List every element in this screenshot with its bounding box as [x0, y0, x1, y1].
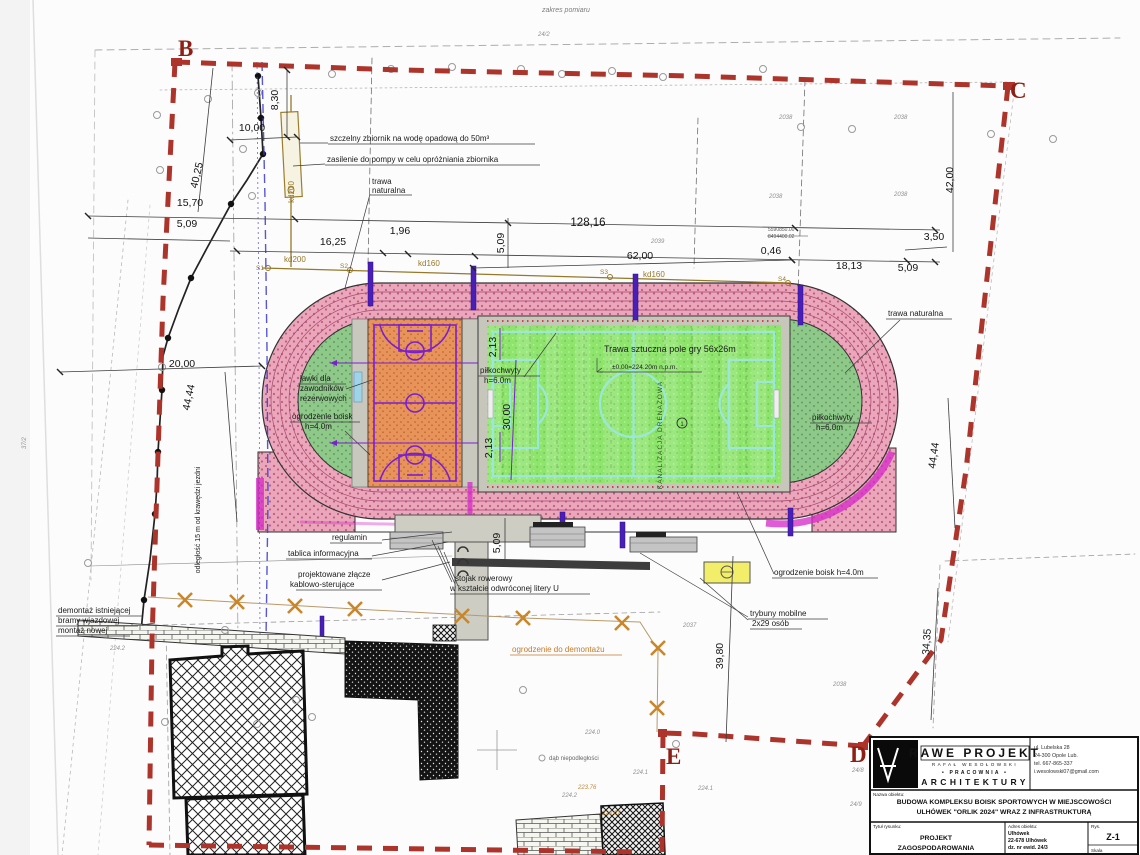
dim-196: 1,96 — [390, 225, 411, 237]
manhole-s1: S1 — [256, 265, 264, 272]
dim-2000: 20,00 — [169, 358, 195, 370]
parcel-n: 24/8 — [851, 768, 864, 774]
parcel-f: 2037 — [682, 623, 697, 629]
callout-tablica: tablica informacyjna — [288, 549, 359, 558]
field-title: Trawa sztuczna pole gry 56x26m — [604, 344, 736, 354]
tb-adres-2: 22-678 Ulhówek — [1008, 838, 1047, 844]
tb-adres-3: dz. nr ewid. 24/3 — [1008, 845, 1048, 851]
callout-ogrodzenie-right: ogrodzenie boisk h=4.0m — [774, 568, 864, 577]
callout-lawki-3: rezerwowych — [300, 394, 347, 403]
callout-trybuny-2: 2x29 osób — [752, 619, 789, 628]
tb-rys-label: Rys. — [1091, 824, 1100, 829]
callout-pilkochwyty-left-2: h=6.0m — [484, 376, 511, 385]
dim-213b: 2,13 — [483, 438, 495, 459]
pipe-kd200-horizontal: kd200 — [284, 255, 306, 264]
dim-1625: 16,25 — [320, 236, 346, 248]
coord-north: 5590850.00 — [768, 227, 795, 233]
callout-demontaz-2: bramy wjazdowej — [58, 616, 120, 625]
tb-tytul-line2: ZAGOSPODAROWANIA — [898, 845, 975, 852]
players-bench — [354, 372, 362, 402]
site-plan-drawing: zakres pomiaru 24/2 B C D E szczelny zbi… — [0, 0, 1140, 855]
callout-odleglosc: odległość 15 m od krawędzi jezdni — [195, 466, 202, 573]
corner-e: E — [666, 744, 681, 769]
dim-12816: 128,16 — [570, 217, 605, 229]
dim-1813: 18,13 — [836, 260, 862, 272]
tb-tytul-label: Tytuł rysunku: — [873, 824, 901, 829]
parcel-i: 224.1 — [632, 770, 648, 776]
yellow-marker-box — [704, 562, 750, 583]
parcel-j: 224.1 — [697, 786, 713, 792]
callout-stojak-1: stojak rowerowy — [455, 574, 512, 583]
field-drain-label: KANALIZACJA DRENAŻOWA — [655, 381, 664, 489]
tb-nazwa-label: Nazwa obiektu: — [873, 792, 904, 797]
callout-trawa-top-2: naturalna — [372, 186, 406, 195]
site-plan-page: zakres pomiaru 24/2 B C D E szczelny zbi… — [0, 0, 1140, 855]
dim-046: 0,46 — [761, 245, 782, 257]
pipe-kd160-b: kd160 — [643, 270, 665, 279]
callout-regulamin: regulamin — [332, 533, 367, 542]
dim-509b: 5,09 — [495, 233, 507, 254]
corner-c: C — [1010, 78, 1027, 103]
parcel-b: 2038 — [893, 115, 908, 121]
callout-ogrodzenie-left-2: h=4.0m — [305, 422, 332, 431]
callout-dab: dąb niepodległości — [549, 756, 599, 762]
tb-company-pracownia: • PRACOWNIA • — [942, 770, 1008, 776]
callout-ogrodzenie-demontaz: ogrodzenie do demontażu — [512, 645, 605, 654]
parcel-d: 2038 — [893, 192, 908, 198]
parcel-l: 224.2 — [109, 646, 126, 652]
parcel-c: 2038 — [768, 194, 783, 200]
paving-block — [516, 814, 603, 855]
parcel-g: 2038 — [832, 682, 847, 688]
parcel-q: 224.07 — [601, 811, 621, 817]
dim-3000: 30,00 — [501, 404, 513, 430]
corner-b: B — [178, 36, 193, 61]
callout-zlacze-2: kablowo-sterujące — [290, 580, 355, 589]
callout-zbiornik: szczelny zbiornik na wodę opadową do 50m… — [330, 134, 490, 143]
tb-address-3: tel. 667-865-337 — [1034, 761, 1073, 767]
callout-lawki-2: zawodników — [300, 384, 344, 393]
dim-1000: 10,00 — [239, 122, 265, 134]
tb-nazwa-line2: ULHÓWEK "ORLIK 2024" WRAZ Z INFRASTRUKTU… — [917, 807, 1092, 816]
zakres-pomiaru-label: zakres pomiaru — [541, 7, 590, 14]
manhole-s2: S2 — [340, 263, 348, 270]
parcel-a: 2038 — [778, 115, 793, 121]
callout-zlacze-1: projektowane złącze — [298, 570, 371, 579]
dim-830: 8,30 — [269, 90, 281, 111]
tb-address-1: ul. Lubelska 28 — [1034, 745, 1070, 751]
callout-pilkochwyty-right-1: piłkochwyty — [812, 413, 853, 422]
pipe-kd200-vertical: kd200 — [287, 181, 296, 203]
dim-509c: 5,09 — [898, 262, 919, 274]
parcel-p: 223.76 — [577, 785, 597, 791]
callout-demontaz-3: montaż nowej — [58, 626, 108, 635]
callout-lawki-1: ławki dla — [300, 374, 331, 383]
tb-company-owner: RAFAŁ WESOŁOWSKI — [932, 762, 1018, 767]
dim-509a: 5,09 — [177, 218, 198, 230]
parcel-o: 24/9 — [849, 802, 862, 808]
callout-pilkochwyty-left-1: piłkochwyty — [480, 366, 521, 375]
manhole-s3: S3 — [600, 269, 608, 276]
tb-rys-value: Z-1 — [1106, 832, 1120, 842]
parcel-m: 37/2 — [22, 437, 28, 449]
existing-building — [170, 646, 307, 798]
tb-adres-1: Ulhówek — [1008, 831, 1029, 837]
dim-6200: 62,00 — [627, 250, 653, 262]
callout-pilkochwyty-right-2: h=6.0m — [816, 423, 843, 432]
parcel-e: 2039 — [650, 239, 665, 245]
tb-skala-label: Skala — [1091, 848, 1103, 853]
tb-adres-label: Adres obiektu: — [1008, 824, 1037, 829]
callout-zasilenie: zasilenie do pompy w celu opróżniania zb… — [327, 155, 499, 164]
tb-company-name: RAWE PROJEKT — [909, 746, 1041, 760]
football-field — [478, 316, 790, 492]
tb-address-4: i.wesolowski07@gmail.com — [1034, 769, 1099, 775]
coord-east: 8494400.02 — [768, 234, 795, 240]
parcel-24-2: 24/2 — [537, 32, 550, 38]
field-elevation: ±0.00=224.20m n.p.m. — [612, 364, 677, 371]
callout-trawa-right: trawa naturalna — [888, 309, 944, 318]
callout-stojak-2: w kształcie odwróconej litery U — [449, 584, 559, 593]
dim-1570: 15,70 — [177, 197, 203, 209]
walk-strip-left — [352, 319, 368, 487]
dim-350: 3,50 — [924, 231, 945, 243]
dim-213a: 2,13 — [487, 337, 499, 358]
dim-3435: 34,35 — [920, 628, 934, 655]
tb-nazwa-line1: BUDOWA KOMPLEKSU BOISK SPORTOWYCH W MIEJ… — [897, 797, 1112, 806]
manhole-s4: S4 — [778, 276, 786, 283]
dim-509d: 5,09 — [491, 533, 503, 554]
parcel-h: 224.0 — [584, 730, 601, 736]
scan-edge — [0, 0, 30, 855]
callout-trawa-top-1: trawa — [372, 177, 392, 186]
pipe-kd160-a: kd160 — [418, 259, 440, 268]
tb-address-2: 24-300 Opole Lub. — [1034, 753, 1078, 759]
corner-d: D — [850, 742, 867, 767]
dim-3980: 39,80 — [714, 643, 726, 669]
tb-tytul-line1: PROJEKT — [920, 835, 953, 842]
callout-demontaz-1: demontaż istniejącej — [58, 606, 131, 615]
tb-company-architektury: ARCHITEKTURY — [921, 777, 1029, 787]
callout-trybuny-1: trybuny mobilne — [750, 609, 807, 618]
callout-ogrodzenie-left-1: ogrodzenie boisk — [292, 412, 353, 421]
walk-strip-mid — [462, 319, 478, 487]
parcel-k: 224.2 — [561, 793, 578, 799]
dim-4200: 42,00 — [944, 167, 956, 193]
title-block: RAWE PROJEKT RAFAŁ WESOŁOWSKI • PRACOWNI… — [870, 737, 1138, 855]
